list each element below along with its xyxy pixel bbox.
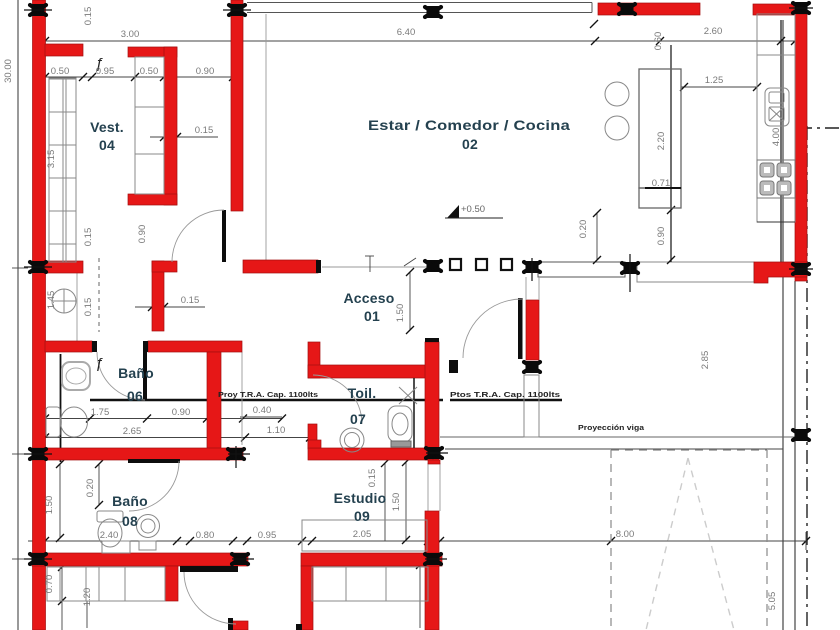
- svg-text:30.00: 30.00: [3, 59, 14, 83]
- svg-text:0.15: 0.15: [195, 125, 214, 136]
- svg-text:1.20: 1.20: [82, 588, 93, 607]
- svg-text:06: 06: [127, 388, 143, 404]
- svg-text:0.15: 0.15: [181, 295, 200, 306]
- svg-text:0.50: 0.50: [51, 66, 70, 77]
- svg-text:02: 02: [462, 136, 478, 152]
- svg-text:2.40: 2.40: [100, 530, 119, 541]
- svg-text:0.15: 0.15: [83, 7, 94, 26]
- svg-text:6.40: 6.40: [397, 27, 416, 38]
- svg-text:0.90: 0.90: [172, 407, 191, 418]
- svg-text:08: 08: [122, 513, 138, 529]
- svg-text:2.05: 2.05: [353, 529, 372, 540]
- svg-text:04: 04: [99, 137, 115, 153]
- svg-text:1.10: 1.10: [267, 425, 286, 436]
- svg-text:1.50: 1.50: [44, 496, 55, 515]
- svg-text:4.00: 4.00: [771, 128, 782, 147]
- svg-text:Baño: Baño: [118, 365, 154, 381]
- svg-text:Baño: Baño: [112, 493, 148, 509]
- svg-text:Toil.: Toil.: [348, 385, 377, 401]
- svg-text:0.70: 0.70: [44, 575, 55, 594]
- svg-text:3.15: 3.15: [46, 150, 57, 169]
- svg-text:0.90: 0.90: [137, 225, 148, 244]
- svg-text:8.00: 8.00: [616, 529, 635, 540]
- svg-text:0.20: 0.20: [85, 479, 96, 498]
- svg-text:Estudio: Estudio: [334, 490, 387, 506]
- svg-text:0.15: 0.15: [83, 228, 94, 247]
- svg-text:0.60: 0.60: [653, 32, 664, 51]
- svg-text:0.15: 0.15: [367, 469, 378, 488]
- svg-text:+0.50: +0.50: [461, 204, 485, 215]
- svg-text:1.50: 1.50: [391, 493, 402, 512]
- svg-text:07: 07: [350, 411, 366, 427]
- svg-text:3.00: 3.00: [121, 29, 140, 40]
- svg-text:0.90: 0.90: [196, 66, 215, 77]
- svg-text:Proy T.R.A. Cap. 1100lts: Proy T.R.A. Cap. 1100lts: [218, 390, 318, 399]
- svg-text:Proyección viga: Proyección viga: [578, 423, 645, 432]
- svg-text:0.90: 0.90: [656, 227, 667, 246]
- svg-text:1.50: 1.50: [395, 304, 406, 323]
- svg-text:Acceso: Acceso: [343, 290, 394, 306]
- svg-text:0.50: 0.50: [140, 66, 159, 77]
- svg-text:Estar / Comedor / Cocina: Estar / Comedor / Cocina: [368, 117, 570, 133]
- svg-text:0.95: 0.95: [96, 66, 115, 77]
- svg-text:2.20: 2.20: [656, 132, 667, 151]
- svg-text:1.75: 1.75: [91, 407, 110, 418]
- svg-text:ƒ: ƒ: [95, 355, 103, 372]
- svg-text:0.80: 0.80: [196, 530, 215, 541]
- svg-text:0.95: 0.95: [258, 530, 277, 541]
- svg-text:09: 09: [354, 508, 370, 524]
- svg-text:0.20: 0.20: [578, 220, 589, 239]
- svg-text:0.15: 0.15: [83, 298, 94, 317]
- svg-text:Vest.: Vest.: [90, 119, 124, 135]
- svg-text:0.40: 0.40: [253, 405, 272, 416]
- svg-text:5.05: 5.05: [767, 592, 778, 611]
- svg-text:2.60: 2.60: [704, 26, 723, 37]
- svg-text:1.45: 1.45: [46, 291, 57, 310]
- svg-text:1.25: 1.25: [705, 75, 724, 86]
- svg-text:Ptos T.R.A. Cap. 1100lts: Ptos T.R.A. Cap. 1100lts: [450, 390, 560, 399]
- svg-text:2.85: 2.85: [700, 351, 711, 370]
- svg-text:01: 01: [364, 308, 380, 324]
- svg-text:2.65: 2.65: [123, 426, 142, 437]
- svg-text:0.71: 0.71: [652, 178, 671, 189]
